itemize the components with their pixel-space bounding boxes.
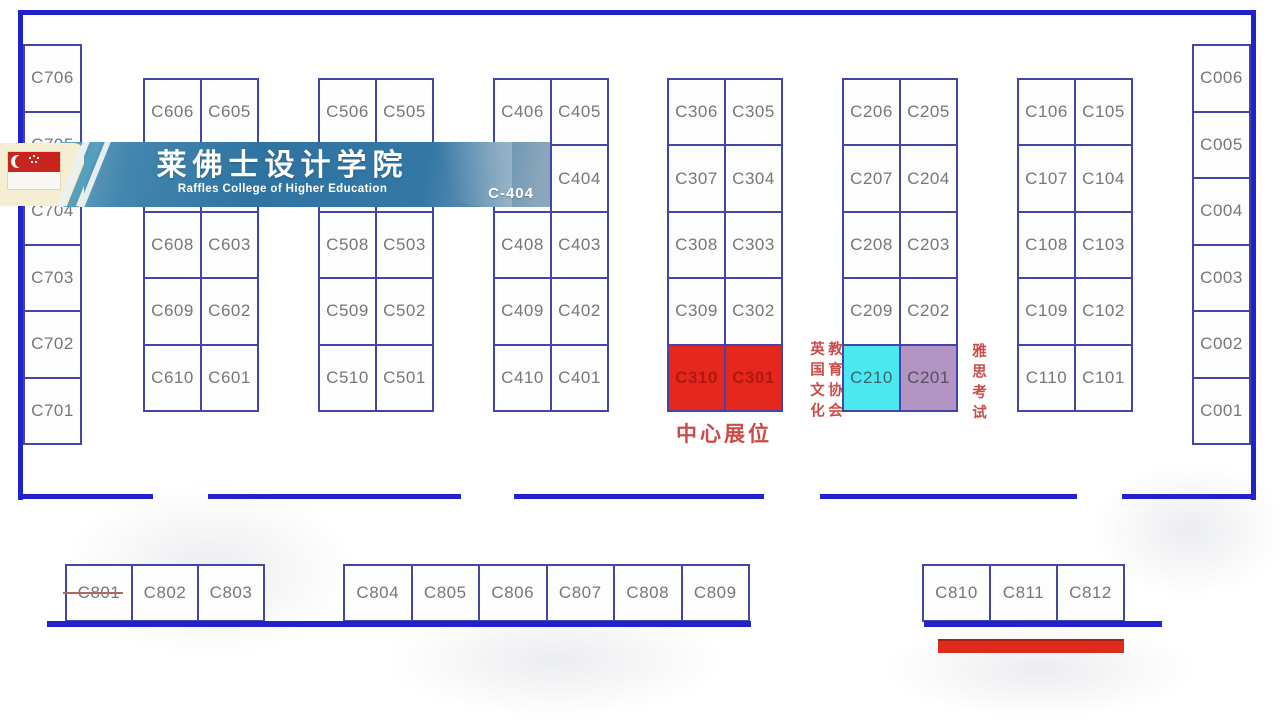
booth-label: C603 [208,235,251,255]
booth-C812: C812 [1056,564,1125,622]
banner-subtitle: Raffles College of Higher Education [95,183,470,195]
booth-label: C104 [1082,169,1125,189]
booth-label: C206 [850,102,893,122]
booth-label: C410 [501,368,544,388]
booth-label: C503 [383,235,426,255]
booth-C209: C209 [842,277,901,345]
booth-label: C101 [1082,368,1125,388]
booth-label: C107 [1025,169,1068,189]
hall-wall-bottom-segment [820,494,1077,499]
booth-label: C403 [558,235,601,255]
hall-wall-bottom-segment [208,494,461,499]
booth-C802: C802 [131,564,199,622]
booth-label: C105 [1082,102,1125,122]
bottom-row-baseline-left [47,621,751,627]
booth-C409: C409 [493,277,552,345]
booth-label: C703 [31,268,74,288]
booth-C609: C609 [143,277,202,345]
booth-label: C106 [1025,102,1068,122]
booth-label: C310 [675,368,718,388]
booth-label: C806 [491,583,534,603]
booth-C503: C503 [375,211,434,279]
booth-label: C103 [1082,235,1125,255]
booth-C308: C308 [667,211,726,279]
booth-C602: C602 [200,277,259,345]
booth-label: C004 [1200,201,1243,221]
booth-C003: C003 [1192,244,1251,313]
booth-C208: C208 [842,211,901,279]
booth-C506: C506 [318,78,377,146]
booth-C405: C405 [550,78,609,146]
booth-label: C601 [208,368,251,388]
booth-label: C003 [1200,268,1243,288]
singapore-flag-icon [8,152,60,189]
booth-label: C204 [907,169,950,189]
booth-label: C207 [850,169,893,189]
british-council-annotation-col2: 教育协会 [824,341,845,423]
booth-C805: C805 [411,564,481,622]
ielts-annotation: 雅思考试 [968,343,989,425]
booth-label: C304 [732,169,775,189]
booth-C103: C103 [1074,211,1133,279]
booth-C210: C210 [842,344,901,412]
hall-wall-left [18,10,23,500]
booth-C502: C502 [375,277,434,345]
booth-label: C505 [383,102,426,122]
booth-label: C605 [208,102,251,122]
booth-label: C210 [850,368,893,388]
booth-label: C405 [558,102,601,122]
background-watermark [880,620,1200,720]
booth-C304: C304 [724,144,783,212]
booth-label: C805 [424,583,467,603]
booth-C204: C204 [899,144,958,212]
booth-label: C402 [558,301,601,321]
booth-C307: C307 [667,144,726,212]
booth-label: C108 [1025,235,1068,255]
booth-C303: C303 [724,211,783,279]
booth-label: C810 [935,583,978,603]
hall-wall-right [1251,10,1256,500]
booth-label: C305 [732,102,775,122]
booth-label: C807 [559,583,602,603]
exhibition-hall-floorplan: C706C705C704C703C702C701C006C005C004C003… [0,0,1280,690]
booth-C808: C808 [613,564,683,622]
booth-C104: C104 [1074,144,1133,212]
booth-label: C205 [907,102,950,122]
booth-label: C610 [151,368,194,388]
booth-C310: C310 [667,344,726,412]
booth-label: C702 [31,334,74,354]
raffles-college-banner: 莱佛士设计学院 Raffles College of Higher Educat… [0,142,550,207]
booth-C505: C505 [375,78,434,146]
booth-C702: C702 [23,310,82,379]
booth-label: C706 [31,68,74,88]
flag-stars [29,157,31,159]
booth-label: C401 [558,368,601,388]
booth-label: C303 [732,235,775,255]
booth-C603: C603 [200,211,259,279]
booth-C105: C105 [1074,78,1133,146]
booth-label: C609 [151,301,194,321]
booth-C403: C403 [550,211,609,279]
booth-C106: C106 [1017,78,1076,146]
booth-label: C306 [675,102,718,122]
booth-C201: C201 [899,344,958,412]
flag-red-half [8,152,60,172]
booth-C206: C206 [842,78,901,146]
booth-label: C002 [1200,334,1243,354]
booth-label: C509 [326,301,369,321]
booth-C004: C004 [1192,177,1251,246]
banner-booth-ref: C-404 [488,185,534,202]
booth-label: C809 [694,583,737,603]
booth-label: C506 [326,102,369,122]
booth-C706: C706 [23,44,82,113]
booth-C202: C202 [899,277,958,345]
booth-C605: C605 [200,78,259,146]
booth-C810: C810 [922,564,991,622]
booth-C703: C703 [23,244,82,313]
booth-C401: C401 [550,344,609,412]
booth-C302: C302 [724,277,783,345]
booth-C107: C107 [1017,144,1076,212]
booth-C801: C801 [65,564,133,622]
booth-C811: C811 [989,564,1058,622]
flag-crescent [11,155,24,168]
booth-C408: C408 [493,211,552,279]
booth-C508: C508 [318,211,377,279]
booth-C102: C102 [1074,277,1133,345]
booth-label: C301 [732,368,775,388]
booth-label: C001 [1200,401,1243,421]
booth-C002: C002 [1192,310,1251,379]
hall-wall-bottom-segment [514,494,764,499]
booth-label: C005 [1200,135,1243,155]
banner-text: 莱佛士设计学院 Raffles College of Higher Educat… [95,149,470,195]
booth-C101: C101 [1074,344,1133,412]
booth-label: C802 [144,583,187,603]
booth-label: C404 [558,169,601,189]
booth-C306: C306 [667,78,726,146]
booth-label: C209 [850,301,893,321]
booth-label: C302 [732,301,775,321]
hall-wall-bottom-segment [1122,494,1256,499]
booth-label: C307 [675,169,718,189]
bottom-row-baseline-right [924,621,1162,627]
booth-C601: C601 [200,344,259,412]
booth-C606: C606 [143,78,202,146]
booth-label: C812 [1069,583,1112,603]
booth-label: C803 [210,583,253,603]
booth-C608: C608 [143,211,202,279]
booth-label: C502 [383,301,426,321]
booth-label: C510 [326,368,369,388]
booth-C207: C207 [842,144,901,212]
booth-label: C409 [501,301,544,321]
booth-C305: C305 [724,78,783,146]
booth-C501: C501 [375,344,434,412]
booth-label: C501 [383,368,426,388]
booth-C809: C809 [681,564,751,622]
booth-C109: C109 [1017,277,1076,345]
booth-label: C811 [1003,583,1044,603]
booth-C410: C410 [493,344,552,412]
booth-C404: C404 [550,144,609,212]
booth-label: C508 [326,235,369,255]
booth-label: C309 [675,301,718,321]
booth-C205: C205 [899,78,958,146]
booth-C701: C701 [23,377,82,446]
booth-C301: C301 [724,344,783,412]
booth-C803: C803 [197,564,265,622]
booth-C108: C108 [1017,211,1076,279]
booth-label: C606 [151,102,194,122]
booth-C406: C406 [493,78,552,146]
booth-label: C408 [501,235,544,255]
booth-label: C801 [78,583,121,603]
booth-C309: C309 [667,277,726,345]
booth-label: C203 [907,235,950,255]
booth-label: C406 [501,102,544,122]
booth-C804: C804 [343,564,413,622]
hall-wall-bottom-segment [18,494,153,499]
booth-label: C202 [907,301,950,321]
booth-label: C308 [675,235,718,255]
hall-wall-top [18,10,1256,15]
booth-C005: C005 [1192,111,1251,180]
booth-C110: C110 [1017,344,1076,412]
booth-C402: C402 [550,277,609,345]
booth-label: C808 [626,583,669,603]
booth-C807: C807 [546,564,616,622]
booth-C001: C001 [1192,377,1251,446]
booth-label: C110 [1026,368,1067,388]
booth-label: C804 [356,583,399,603]
booth-label: C006 [1200,68,1243,88]
booth-label: C608 [151,235,194,255]
banner-title: 莱佛士设计学院 [95,149,470,182]
booth-label: C701 [31,401,74,421]
booth-label: C109 [1025,301,1068,321]
booth-label: C102 [1082,301,1125,321]
booth-label: C208 [850,235,893,255]
booth-label: C602 [208,301,251,321]
booth-C610: C610 [143,344,202,412]
booth-label: C201 [907,368,950,388]
red-highlight-bar [938,639,1124,653]
booth-C509: C509 [318,277,377,345]
center-booth-annotation: 中心展位 [654,418,794,448]
booth-C510: C510 [318,344,377,412]
booth-C006: C006 [1192,44,1251,113]
flag-white-half [8,172,60,189]
booth-C203: C203 [899,211,958,279]
booth-C806: C806 [478,564,548,622]
